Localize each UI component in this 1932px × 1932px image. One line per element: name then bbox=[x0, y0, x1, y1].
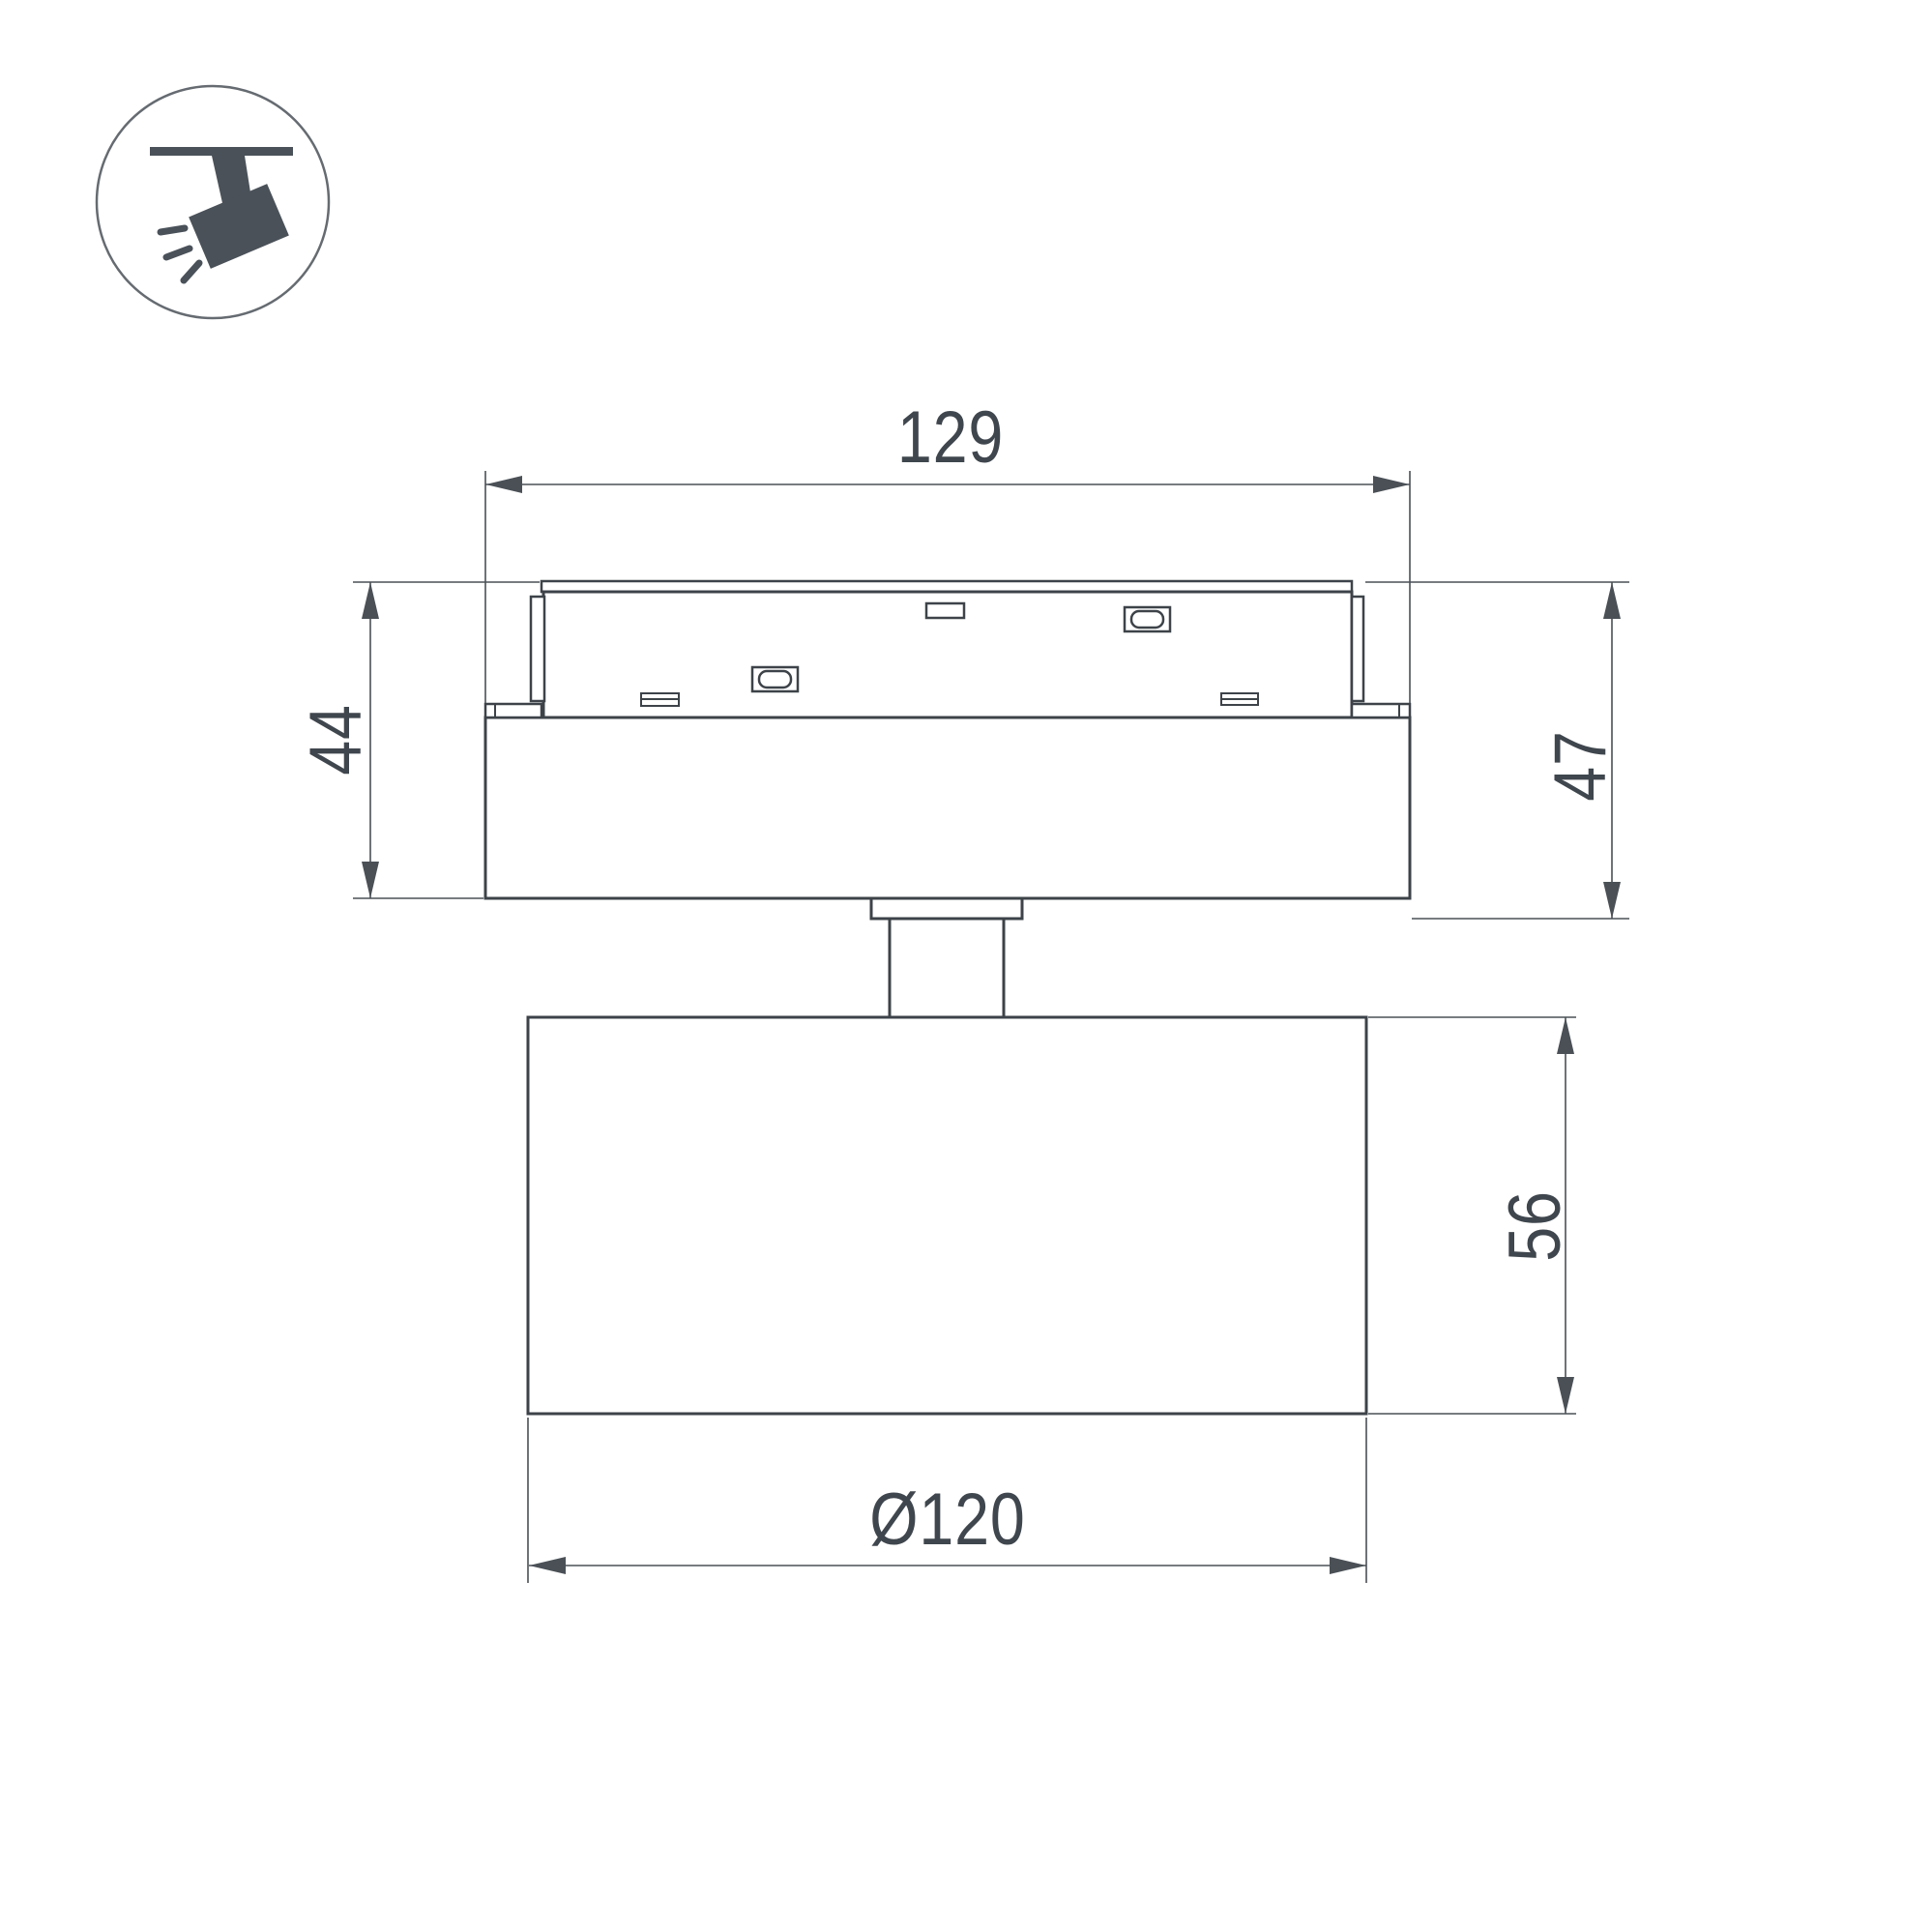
connector-left bbox=[752, 667, 798, 691]
arrow-right bbox=[1373, 476, 1410, 493]
dim-label-head-height: 56 bbox=[1493, 1190, 1575, 1262]
base-body bbox=[485, 717, 1410, 898]
arrow-left bbox=[529, 1557, 566, 1574]
left-end-cap bbox=[531, 597, 544, 701]
connector-right bbox=[1125, 607, 1170, 631]
arrow-left bbox=[485, 476, 522, 493]
vent-slot-left bbox=[641, 693, 679, 706]
arrow-right bbox=[1330, 1557, 1366, 1574]
contact-window bbox=[926, 603, 964, 618]
technical-drawing-canvas: 129 44 47 56 Ø120 bbox=[0, 0, 1932, 1932]
arrow-down bbox=[1557, 1377, 1574, 1414]
swivel-neck bbox=[890, 919, 1004, 1018]
icon-circle bbox=[97, 86, 329, 318]
arrow-up bbox=[1557, 1017, 1574, 1054]
right-lip bbox=[1352, 704, 1410, 717]
arrow-down bbox=[362, 862, 379, 898]
arrow-up bbox=[362, 582, 379, 619]
dim-label-overall-height: 47 bbox=[1538, 730, 1621, 802]
dim-label-track-width: 129 bbox=[897, 395, 1004, 478]
right-end-cap bbox=[1352, 597, 1363, 701]
fixture-drawing bbox=[485, 581, 1410, 1414]
product-type-icon bbox=[97, 86, 329, 318]
icon-track-bar bbox=[150, 147, 293, 156]
vent-slot-right bbox=[1221, 693, 1258, 705]
track-plate bbox=[542, 581, 1352, 592]
dim-label-base-height: 44 bbox=[294, 704, 376, 776]
arrow-up bbox=[1603, 582, 1621, 619]
lamp-head bbox=[528, 1017, 1366, 1414]
left-lip bbox=[485, 704, 542, 717]
mounting-flange bbox=[871, 898, 1022, 919]
dim-label-head-diameter: Ø120 bbox=[869, 1478, 1025, 1560]
arrow-down bbox=[1603, 882, 1621, 919]
